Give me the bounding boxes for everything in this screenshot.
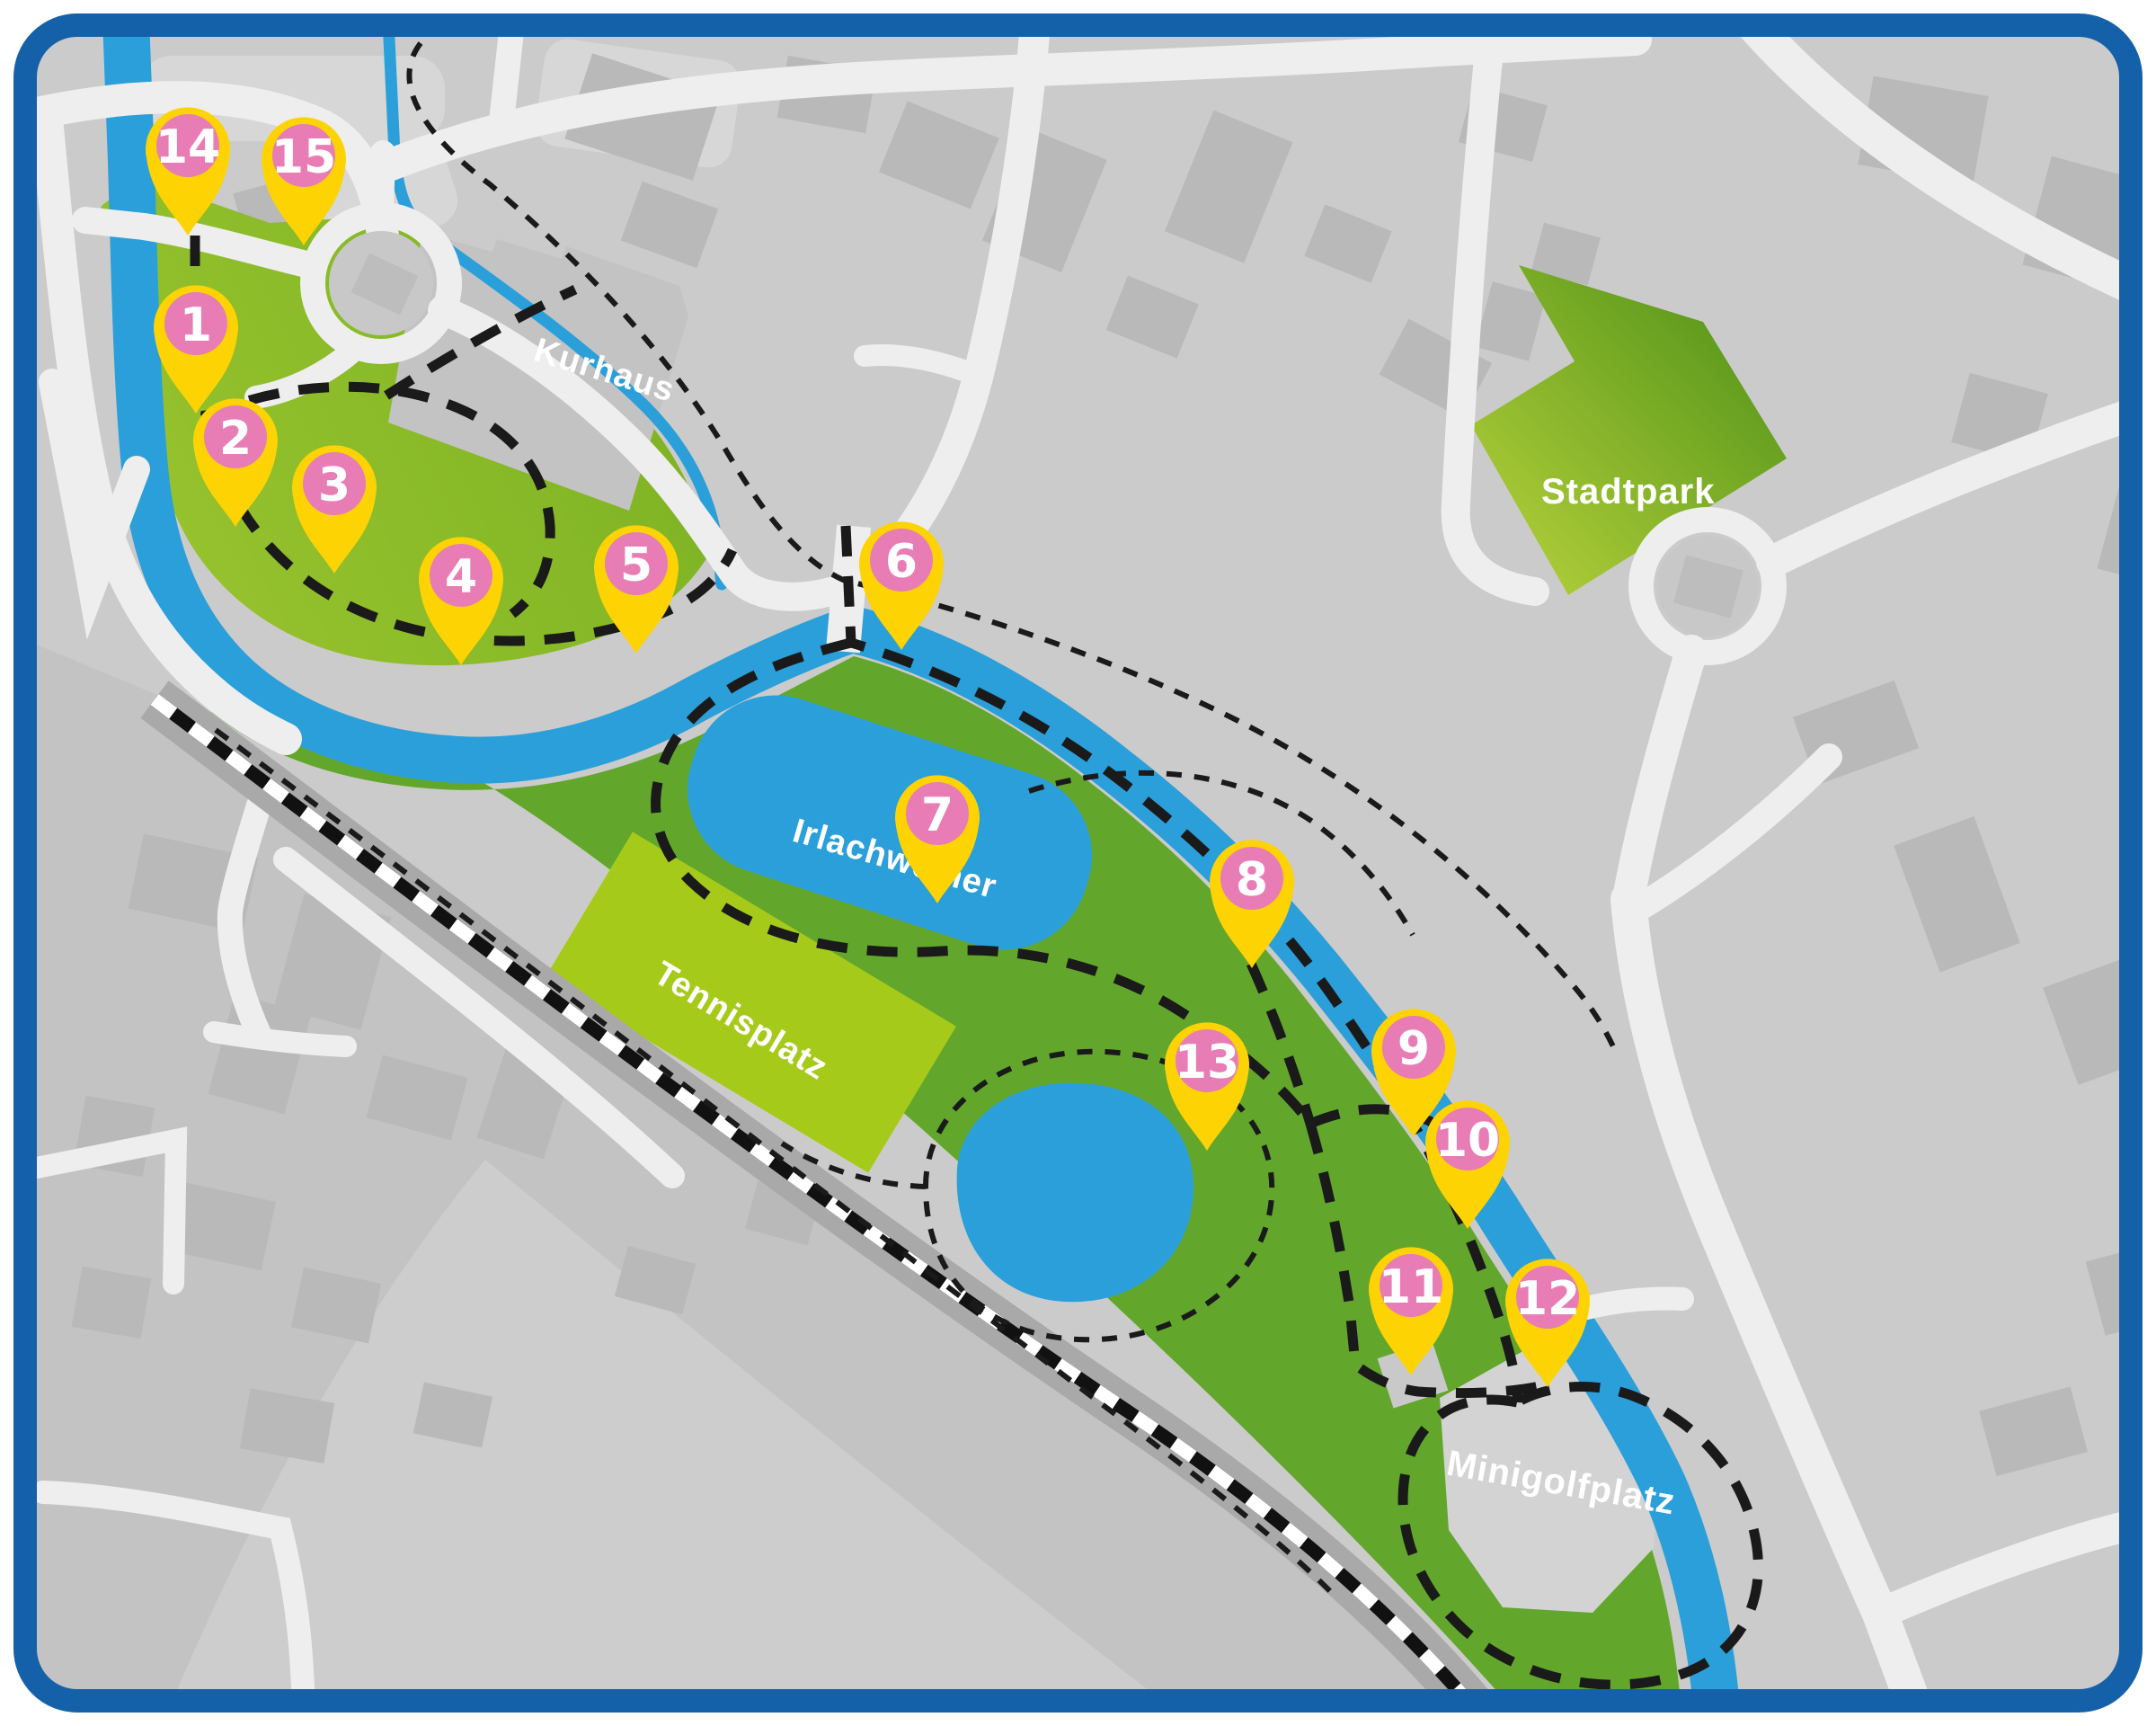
svg-text:3: 3 [318, 458, 350, 512]
park-map: Kurhaus Stadtpark Irlachweiher Tennispla… [0, 0, 2156, 1726]
svg-text:13: 13 [1175, 1036, 1239, 1090]
svg-text:6: 6 [885, 535, 918, 589]
svg-text:1: 1 [180, 298, 212, 352]
svg-text:5: 5 [620, 538, 652, 592]
map-canvas: Kurhaus Stadtpark Irlachweiher Tennispla… [0, 0, 2156, 1726]
svg-text:12: 12 [1515, 1272, 1580, 1326]
svg-text:10: 10 [1435, 1114, 1500, 1168]
svg-text:14: 14 [155, 120, 220, 174]
svg-text:8: 8 [1236, 853, 1268, 907]
svg-text:15: 15 [271, 130, 336, 184]
svg-text:4: 4 [445, 550, 477, 604]
small-pond [957, 1083, 1193, 1303]
label-stadtpark: Stadtpark [1541, 472, 1716, 512]
svg-text:11: 11 [1379, 1260, 1443, 1314]
svg-text:7: 7 [921, 788, 954, 842]
svg-text:2: 2 [219, 412, 252, 466]
svg-text:9: 9 [1397, 1022, 1430, 1076]
